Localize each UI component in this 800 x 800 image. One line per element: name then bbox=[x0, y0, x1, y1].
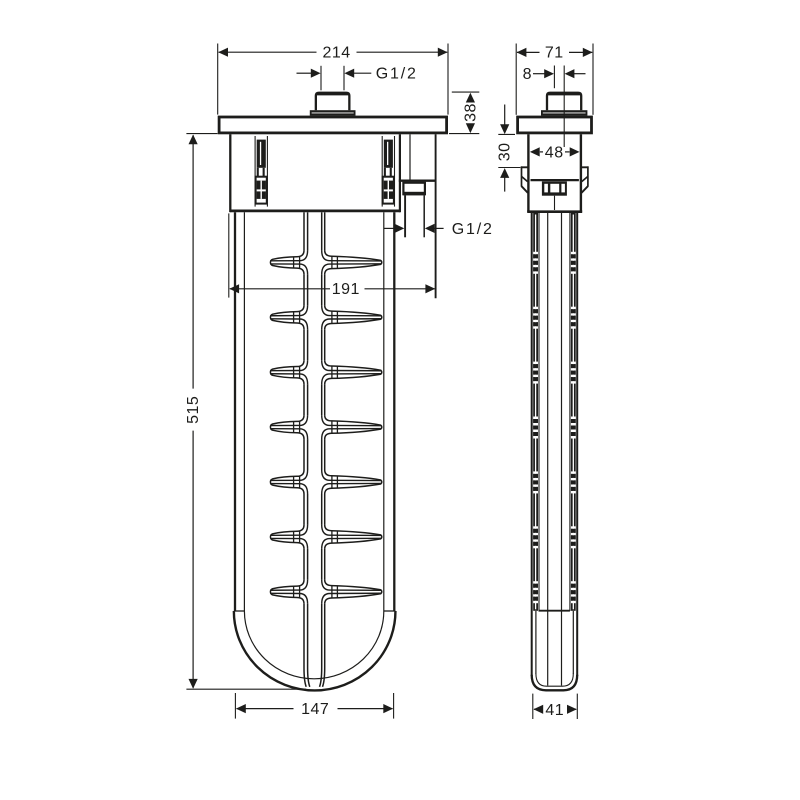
svg-text:8: 8 bbox=[523, 66, 532, 83]
svg-text:191: 191 bbox=[332, 281, 360, 298]
svg-text:38: 38 bbox=[463, 103, 480, 122]
svg-text:30: 30 bbox=[496, 143, 513, 162]
svg-text:515: 515 bbox=[185, 396, 202, 424]
svg-text:214: 214 bbox=[322, 44, 350, 61]
svg-text:G1/2: G1/2 bbox=[452, 221, 494, 238]
svg-text:147: 147 bbox=[301, 701, 329, 718]
svg-text:41: 41 bbox=[545, 702, 564, 719]
svg-text:G1/2: G1/2 bbox=[376, 66, 418, 83]
svg-text:71: 71 bbox=[545, 45, 564, 62]
svg-text:48: 48 bbox=[545, 144, 564, 161]
